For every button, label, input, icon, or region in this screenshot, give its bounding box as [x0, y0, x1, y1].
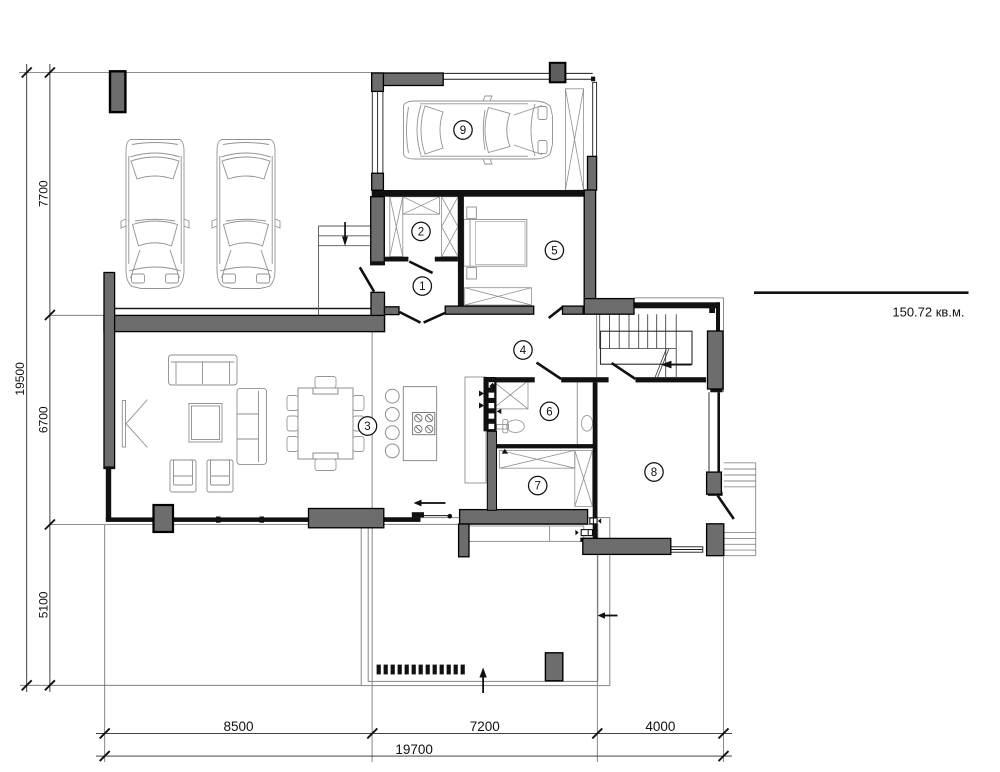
svg-text:5: 5	[551, 245, 557, 257]
svg-text:3: 3	[364, 421, 370, 433]
svg-text:6: 6	[546, 406, 552, 418]
svg-text:19500: 19500	[13, 362, 27, 396]
svg-text:2: 2	[418, 227, 424, 239]
svg-text:8: 8	[651, 467, 657, 479]
svg-text:19700: 19700	[395, 742, 433, 757]
svg-text:7200: 7200	[470, 719, 500, 734]
svg-text:9: 9	[460, 125, 466, 137]
svg-text:7: 7	[534, 481, 540, 493]
svg-text:4000: 4000	[645, 719, 675, 734]
svg-text:4: 4	[520, 345, 527, 357]
svg-text:7700: 7700	[37, 180, 51, 207]
svg-text:6700: 6700	[37, 406, 51, 433]
svg-text:8500: 8500	[223, 719, 253, 734]
svg-text:5100: 5100	[37, 591, 51, 618]
svg-text:1: 1	[419, 281, 425, 293]
svg-text:150.72 кв.м.: 150.72 кв.м.	[892, 305, 964, 320]
